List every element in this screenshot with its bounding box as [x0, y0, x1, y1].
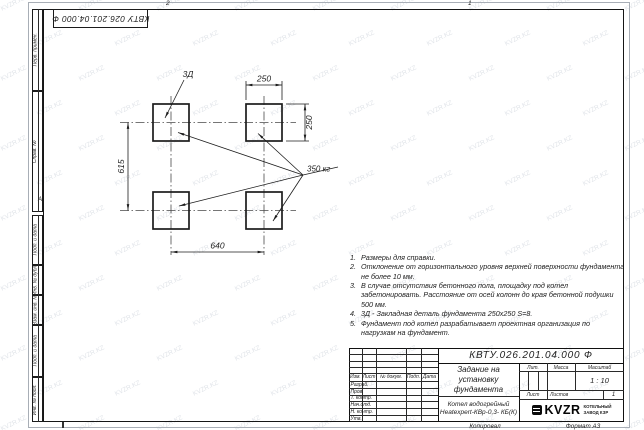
tb-mass-label: Масса	[547, 364, 575, 371]
tb-line	[406, 348, 407, 422]
gear-icon	[532, 405, 542, 415]
dim-640-bottom: 640	[210, 241, 224, 251]
org-name-line2: ЗАВОД КЗР	[584, 410, 612, 416]
note-3-text: В случае отсутствия бетонного пола, площ…	[361, 281, 625, 309]
tb-product-line1: Котел водогрейный	[440, 401, 517, 409]
tb-scale-label: Масштаб	[575, 364, 624, 371]
footer-tick	[62, 422, 64, 428]
tb-title-line1: Задание на установку	[438, 365, 519, 385]
tb-line	[538, 371, 539, 390]
tb-line	[349, 361, 438, 362]
tb-sheets-label: Листов	[550, 392, 568, 398]
tb-line	[349, 367, 438, 368]
note-1-text: Размеры для справки.	[361, 253, 625, 262]
tb-row-utv: Утв.	[351, 416, 362, 422]
note-4-number: 4.	[347, 309, 361, 318]
tb-product-line2: Heatexpert-КВр-0,3- КБ(К)	[440, 409, 517, 417]
dim-250-top: 250	[256, 74, 271, 84]
detail-label-3d: 3Д	[183, 69, 194, 79]
tb-col-docnum: № докум.	[376, 374, 406, 381]
note-5-text: Фундамент под котел разрабатывает проект…	[361, 319, 625, 338]
drawing-sheet: KVZR.KZKVZR.KZKVZR.KZKVZR.KZKVZR.KZKVZR.…	[0, 0, 644, 430]
tb-col-data: Дата	[421, 374, 438, 381]
note-4-text: 3Д - Закладная деталь фундамента 250х250…	[361, 309, 625, 318]
tb-col-izm: Изм.	[349, 374, 362, 381]
notes-block: 1. Размеры для справки. 2. Отклонение от…	[347, 253, 625, 337]
tb-line	[421, 348, 422, 422]
note-2-text: Отклонение от горизонтального уровня вер…	[361, 262, 625, 281]
tb-row-nkontr: Н. контр.	[351, 409, 374, 415]
tb-row-prov: Пров.	[351, 389, 364, 395]
centerlines	[120, 96, 296, 255]
tb-line	[519, 371, 624, 372]
note-1: 1. Размеры для справки.	[347, 253, 625, 262]
note-5: 5. Фундамент под котел разрабатывает про…	[347, 319, 625, 338]
note-3-number: 3.	[347, 281, 361, 309]
note-5-number: 5.	[347, 319, 361, 338]
tb-line	[528, 371, 529, 390]
note-4: 4. 3Д - Закладная деталь фундамента 250х…	[347, 309, 625, 318]
note-2: 2. Отклонение от горизонтального уровня …	[347, 262, 625, 281]
tb-line	[349, 354, 438, 355]
tb-col-list: Лист	[362, 374, 376, 381]
tb-scale-value: 1 : 10	[575, 374, 624, 386]
tb-title-line2: фундамента	[438, 385, 519, 395]
tb-line	[349, 415, 438, 416]
tb-row-tkontr: Т. контр.	[351, 395, 373, 401]
tb-doc-number: КВТУ.026.201.04.000 Ф	[438, 348, 624, 363]
dim-250-right: 250	[304, 115, 314, 130]
tb-title: Задание на установку фундамента	[438, 363, 519, 396]
tb-sheet-label: Лист	[520, 391, 546, 398]
load-label-350kg: 350 кг	[307, 165, 330, 174]
footer-format: Формат А3	[558, 423, 608, 430]
tb-line	[376, 348, 377, 422]
note-2-number: 2.	[347, 262, 361, 281]
org-logo-text: KVZR	[545, 403, 581, 417]
footer-copied: Копировал	[455, 423, 515, 430]
tb-row-nachotd: Нач.отд.	[351, 402, 372, 408]
tb-sheets-value: 1	[603, 391, 624, 399]
tb-org-cell: KVZR КОТЕЛЬНЫЙ ЗАВОД КЗР	[521, 400, 622, 420]
tb-lit-label: Лит.	[519, 364, 547, 371]
note-1-number: 1.	[347, 253, 361, 262]
tb-product: Котел водогрейный Heatexpert-КВр-0,3- КБ…	[438, 396, 519, 422]
tb-col-podp: Подп.	[406, 374, 421, 381]
tb-row-razrab: Разраб.	[351, 382, 369, 388]
note-3: 3. В случае отсутствия бетонного пола, п…	[347, 281, 625, 309]
dim-615-left: 615	[116, 159, 126, 173]
